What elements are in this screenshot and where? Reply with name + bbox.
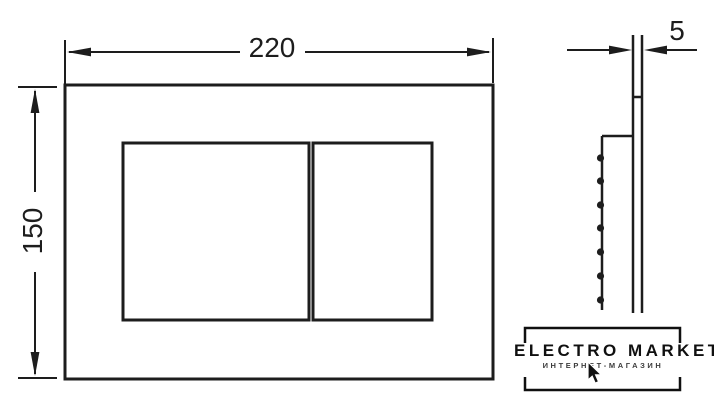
width-dimension-label: 220 (238, 34, 306, 62)
tooth-icon (597, 154, 604, 161)
tooth-icon (597, 272, 604, 279)
tooth-icon (597, 177, 604, 184)
screenshot-canvas: 220 150 5 ELECTRO MARKET ИНТЕРНЕТ-МАГАЗИ… (0, 0, 714, 410)
arrowhead-left-icon (67, 48, 91, 57)
arrowhead-left-icon (644, 46, 667, 55)
tooth-icon (597, 224, 604, 231)
mouse-pointer-icon (586, 361, 606, 385)
arrowhead-down-icon (31, 352, 40, 376)
arrowhead-right-icon (467, 48, 491, 57)
height-dimension-label: 150 (19, 195, 47, 267)
watermark-brand-text: ELECTRO MARKET (514, 342, 692, 359)
thickness-dimension-label: 5 (659, 17, 695, 45)
plate-outline (65, 85, 493, 379)
small-flush-button (313, 143, 432, 320)
tooth-icon (597, 296, 604, 303)
tooth-icon (597, 201, 604, 208)
side-view (602, 35, 642, 313)
arrowhead-right-icon (609, 46, 632, 55)
arrowhead-up-icon (31, 89, 40, 113)
tooth-icon (597, 248, 604, 255)
front-view (65, 85, 493, 379)
large-flush-button (123, 143, 309, 320)
